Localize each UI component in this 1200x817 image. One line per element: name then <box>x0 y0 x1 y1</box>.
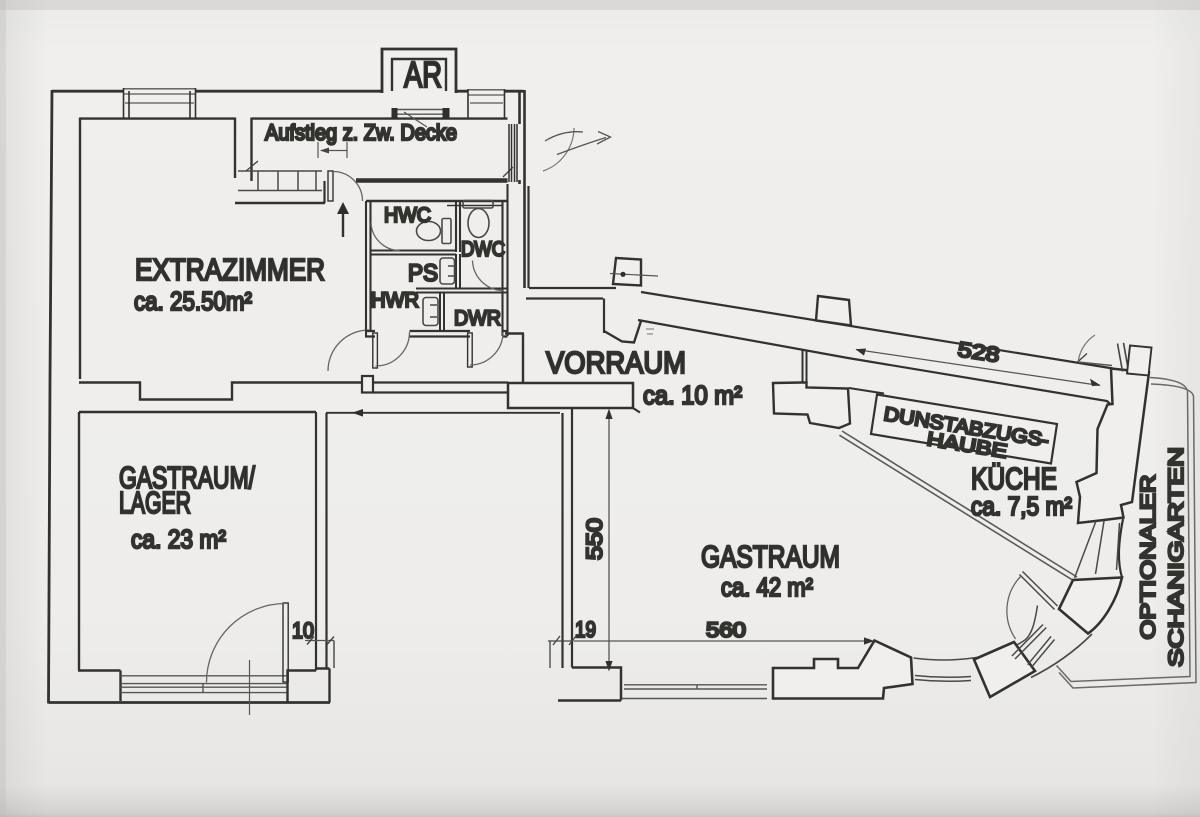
svg-text:ca. 7,5 m²: ca. 7,5 m² <box>971 491 1072 521</box>
svg-text:ca. 42 m²: ca. 42 m² <box>721 572 813 602</box>
svg-text:DWC: DWC <box>461 238 505 261</box>
svg-text:PS: PS <box>408 260 438 287</box>
svg-text:OPTIONALER: OPTIONALER <box>1137 475 1160 640</box>
svg-text:HWR: HWR <box>371 289 419 312</box>
svg-text:AR: AR <box>404 54 442 95</box>
svg-text:550: 550 <box>582 518 607 560</box>
svg-text:DWR: DWR <box>454 307 501 330</box>
svg-text:EXTRAZIMMER: EXTRAZIMMER <box>135 252 325 287</box>
svg-text:LAGER: LAGER <box>119 485 191 520</box>
svg-text:ca. 25.50m²: ca. 25.50m² <box>134 286 252 316</box>
svg-text:560: 560 <box>706 619 746 642</box>
svg-text:19: 19 <box>575 617 596 642</box>
svg-text:GASTRAUM: GASTRAUM <box>701 539 840 574</box>
svg-text:VORRAUM: VORRAUM <box>546 345 686 380</box>
svg-text:ca. 23 m²: ca. 23 m² <box>131 524 226 554</box>
svg-text:Aufstieg z. Zw. Decke: Aufstieg z. Zw. Decke <box>265 120 457 145</box>
svg-text:SCHANIGARTEN: SCHANIGARTEN <box>1165 447 1188 667</box>
svg-text:HWC: HWC <box>384 204 431 227</box>
svg-text:ca. 10 m²: ca. 10 m² <box>643 380 742 410</box>
